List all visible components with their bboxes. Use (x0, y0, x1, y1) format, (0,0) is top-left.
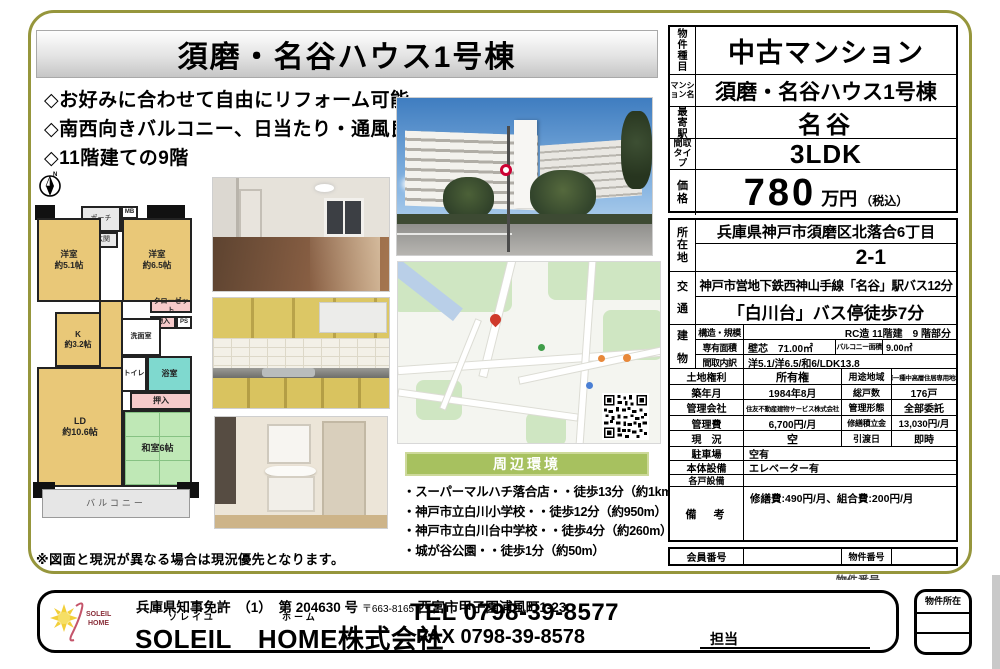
road (397, 224, 652, 255)
floor-plan: ポーチ MB PS 玄関 洋室 約5.1帖 洋室 約6.5帖 クローゼット 物入… (33, 200, 201, 545)
price-number: 780 (744, 172, 816, 215)
balcony: バルコニー (42, 489, 190, 518)
balcony-area-value: 9.00㎡ (883, 340, 956, 354)
property-number-value (892, 549, 956, 564)
column-block (147, 205, 185, 218)
real-estate-flyer: { "colors":{"border_olive":"#96963c","su… (0, 0, 1000, 669)
surroundings-item: ・神戸市立白川台中学校・・徒歩4分（約260m） (403, 522, 684, 542)
built-date-value: 1984年8月 (744, 385, 842, 399)
tel-number: TEL 0798-39-8577 (410, 599, 619, 627)
highlight-3: ◇11階建ての9階 (44, 144, 429, 173)
zoning-value: 第一種中高層住居専用地域 (892, 369, 956, 384)
room-japanese: 和室6帖 (123, 410, 192, 487)
property-type: 中古マンション (696, 27, 956, 74)
label-main-equipment: 本体設備 (670, 461, 744, 474)
room-toilet: トイレ (121, 356, 147, 392)
property-location-label: 物件所在 (917, 592, 969, 607)
room-oshiire: 押入 (130, 392, 192, 410)
label-price: 価格 (670, 170, 696, 215)
mansion-name: 須磨・名谷ハウス1号棟 (696, 75, 956, 106)
label-member-number: 会員番号 (670, 549, 744, 564)
label-layout: 間取タイプ (670, 139, 696, 169)
tree (530, 170, 596, 220)
member-number-value (744, 549, 842, 564)
qr-code-icon (602, 393, 649, 440)
layout-type: 3LDK (696, 139, 956, 169)
label-balcony-area: バルコニー面積 (836, 340, 883, 354)
label-exclusive-area: 専有面積 (696, 340, 744, 354)
label-mgmt-company: 管理会社 (670, 400, 744, 415)
access-line1: 神戸市営地下鉄西神山手線「名谷」駅バス12分 (696, 272, 956, 297)
highlight-bullets: ◇お好みに合わせて自由にリフォーム可能 ◇南西向きバルコニー、日当たり・通風良好… (44, 86, 429, 173)
staff-line: 担当 (700, 629, 870, 649)
address-line2: 2-1 (696, 244, 956, 272)
price-tax-note: （税込） (860, 192, 908, 209)
exclusive-area-value: 壁芯 71.00㎡ (744, 340, 836, 354)
label-address: 所在地 (670, 220, 696, 271)
label-mansion-name: マンション名 (670, 75, 696, 106)
label-station: 最寄駅 (670, 107, 696, 138)
company-name: SOLEIL HOME株式会社 (135, 619, 444, 656)
surroundings-item: ・神戸市立白川小学校・・徒歩12分（約950m） (403, 503, 684, 523)
land-rights-value: 所有権 (744, 369, 842, 384)
room-western-6-5: 洋室 約6.5帖 (122, 218, 192, 302)
total-units-value: 176戸 (892, 385, 956, 399)
living-room-photo (213, 178, 389, 291)
svg-text:SOLEIL: SOLEIL (86, 611, 112, 618)
room-bath: 浴室 (147, 356, 192, 392)
surroundings-item: ・城が谷公園・・徒歩1分（約50m） (403, 542, 684, 562)
label-property-number: 物件番号 (842, 549, 892, 564)
compass-icon: N (38, 170, 64, 198)
label-unit-equipment: 各戸設備 (670, 475, 744, 486)
room-washroom: 洗面室 (121, 318, 161, 356)
price-unit: 万円 (821, 185, 857, 211)
price: 780 万円 （税込） (696, 170, 956, 215)
utility-pole (507, 126, 510, 252)
company-info-box: SOLEIL HOME 兵庫県知事免許 （1） 第 204630 号 〒663-… (37, 590, 899, 653)
label-built-date: 築年月 (670, 385, 744, 399)
room-breakdown-value: 洋5.1/洋6.5/和6/LDK13.8 (744, 355, 956, 369)
scan-edge (992, 575, 1000, 669)
soleil-home-logo-icon: SOLEIL HOME (46, 596, 126, 648)
svg-text:HOME: HOME (88, 620, 109, 627)
label-mgmt-form: 管理形態 (842, 400, 892, 415)
room-closet: クローゼット (150, 300, 192, 313)
structure-value: RC造 11階建 9 階部分 (744, 325, 956, 339)
highlight-2: ◇南西向きバルコニー、日当たり・通風良好 (44, 115, 429, 144)
highlight-1: ◇お好みに合わせて自由にリフォーム可能 (44, 86, 429, 115)
current-status-value: 空 (744, 431, 842, 446)
room-living-dining: LD 約10.6帖 (37, 367, 123, 487)
label-parking: 駐車場 (670, 447, 744, 460)
room-ps2: PS (176, 316, 192, 329)
clipped-property-number-text: 物件番号 (836, 572, 896, 580)
page-title: 須磨・名谷ハウス1号棟 (36, 30, 658, 78)
mgmt-fee-value: 6,700円/月 (744, 416, 842, 430)
label-zoning: 用途地域 (842, 369, 892, 384)
surroundings-list: ・スーパーマルハチ落合店・・徒歩13分（約1km） ・神戸市立白川小学校・・徒歩… (403, 483, 684, 561)
surroundings-header: 周辺環境 (405, 452, 649, 476)
label-total-units: 総戸数 (842, 385, 892, 399)
label-structure: 構造・規模 (696, 325, 744, 339)
label-mgmt-fee: 管理費 (670, 416, 744, 430)
spec-table-member: 会員番号 物件番号 (668, 547, 958, 566)
label-handover: 引渡日 (842, 431, 892, 446)
main-equipment-value: エレベーター有 (744, 461, 956, 474)
label-property-type: 物件種目 (670, 27, 696, 74)
tree (621, 111, 652, 190)
address-line1: 兵庫県神戸市須磨区北落合6丁目 (696, 220, 956, 244)
repair-fund-value: 13,030円/月 (892, 416, 956, 430)
postal-code: 〒663-8165 (362, 604, 414, 615)
surroundings-item: ・スーパーマルハチ落合店・・徒歩13分（約1km） (403, 483, 684, 503)
label-room-breakdown: 間取内訳 (696, 355, 744, 369)
label-land-rights: 土地権利 (670, 369, 744, 384)
mgmt-form-value: 全部委託 (892, 400, 956, 415)
access-line2: 「白川台」バス停徒歩7分 (696, 297, 956, 325)
label-access: 交通 (670, 272, 696, 324)
spec-table-detail: 所在地 兵庫県神戸市須磨区北落合6丁目 2-1 交通 神戸市営地下鉄西神山手線「… (668, 218, 958, 542)
location-map (398, 262, 660, 443)
label-remarks: 備 考 (670, 487, 744, 540)
handover-value: 即時 (892, 431, 956, 446)
remarks-value: 修繕費:490円/月、組合費:200円/月 (744, 487, 956, 540)
kitchen-photo (213, 298, 389, 408)
property-location-stamp-box: 物件所在 (914, 589, 972, 655)
label-repair-fund: 修繕積立金 (842, 416, 892, 430)
label-building: 建物 (670, 325, 696, 368)
washroom-photo (215, 417, 387, 528)
label-current-status: 現 況 (670, 431, 744, 446)
fax-number: FAX 0798-39-8578 (416, 626, 585, 649)
floorplan-disclaimer: ※図面と現況が異なる場合は現況優先となります。 (36, 549, 344, 568)
parking-value: 空有 (744, 447, 956, 460)
mgmt-company-value: 住友不動産建物サービス株式会社 (744, 400, 842, 415)
nearest-station: 名谷 (696, 107, 956, 138)
spec-table-top: 物件種目 中古マンション マンション名 須磨・名谷ハウス1号棟 最寄駅 名谷 間… (668, 25, 958, 213)
building-exterior-photo (397, 98, 652, 255)
unit-equipment-value (744, 475, 956, 486)
room-western-5-1: 洋室 約5.1帖 (37, 218, 101, 302)
staff-label: 担当 (710, 629, 738, 649)
room-kitchen: K 約3.2帖 (55, 312, 101, 367)
